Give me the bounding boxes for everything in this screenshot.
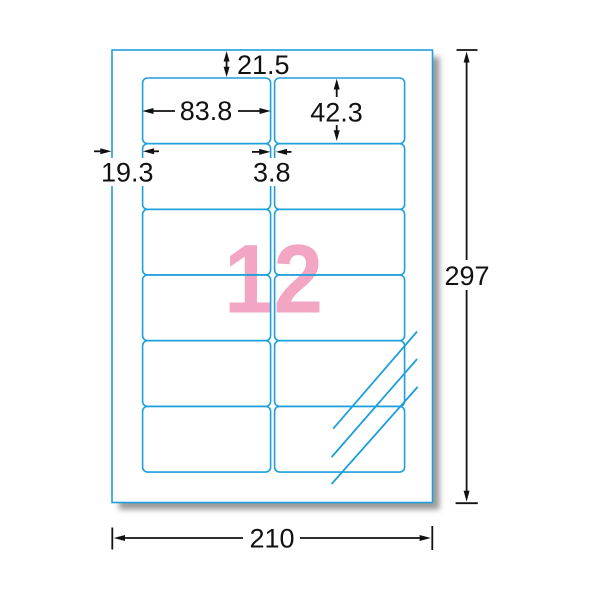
svg-text:3.8: 3.8: [253, 158, 291, 188]
svg-text:12: 12: [224, 225, 323, 334]
svg-text:210: 210: [249, 524, 294, 554]
svg-text:21.5: 21.5: [237, 50, 290, 80]
svg-text:83.8: 83.8: [180, 96, 233, 126]
svg-text:42.3: 42.3: [310, 98, 363, 128]
svg-text:297: 297: [444, 261, 489, 291]
svg-text:19.3: 19.3: [101, 158, 154, 188]
